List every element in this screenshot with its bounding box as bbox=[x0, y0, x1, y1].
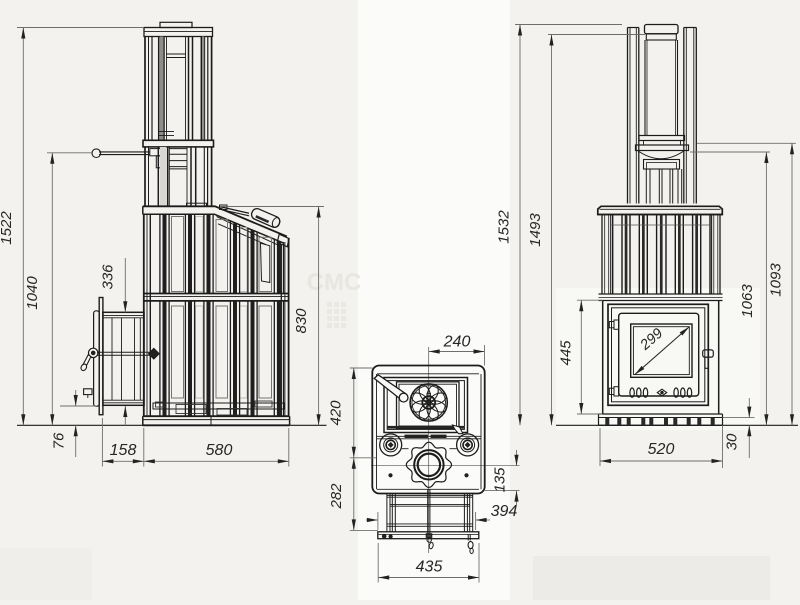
svg-text:1493: 1493 bbox=[527, 213, 544, 247]
svg-text:420: 420 bbox=[327, 400, 344, 426]
svg-text:520: 520 bbox=[648, 441, 675, 458]
svg-text:240: 240 bbox=[443, 334, 471, 351]
svg-text:1522: 1522 bbox=[0, 211, 15, 245]
svg-text:76: 76 bbox=[51, 432, 68, 449]
svg-text:394: 394 bbox=[491, 503, 518, 520]
svg-text:580: 580 bbox=[206, 442, 233, 459]
svg-text:1093: 1093 bbox=[768, 263, 785, 297]
svg-text:135: 135 bbox=[492, 467, 509, 493]
svg-text:1040: 1040 bbox=[24, 276, 41, 310]
svg-text:1063: 1063 bbox=[739, 284, 756, 318]
svg-text:435: 435 bbox=[416, 559, 443, 576]
svg-text:830: 830 bbox=[293, 308, 310, 334]
svg-text:CMC: CMC bbox=[307, 269, 362, 296]
svg-text:336: 336 bbox=[100, 264, 117, 290]
svg-text:282: 282 bbox=[328, 483, 345, 510]
svg-text:1532: 1532 bbox=[496, 210, 513, 244]
svg-text:30: 30 bbox=[724, 433, 741, 450]
svg-text:158: 158 bbox=[110, 442, 137, 459]
svg-text:445: 445 bbox=[558, 340, 575, 366]
